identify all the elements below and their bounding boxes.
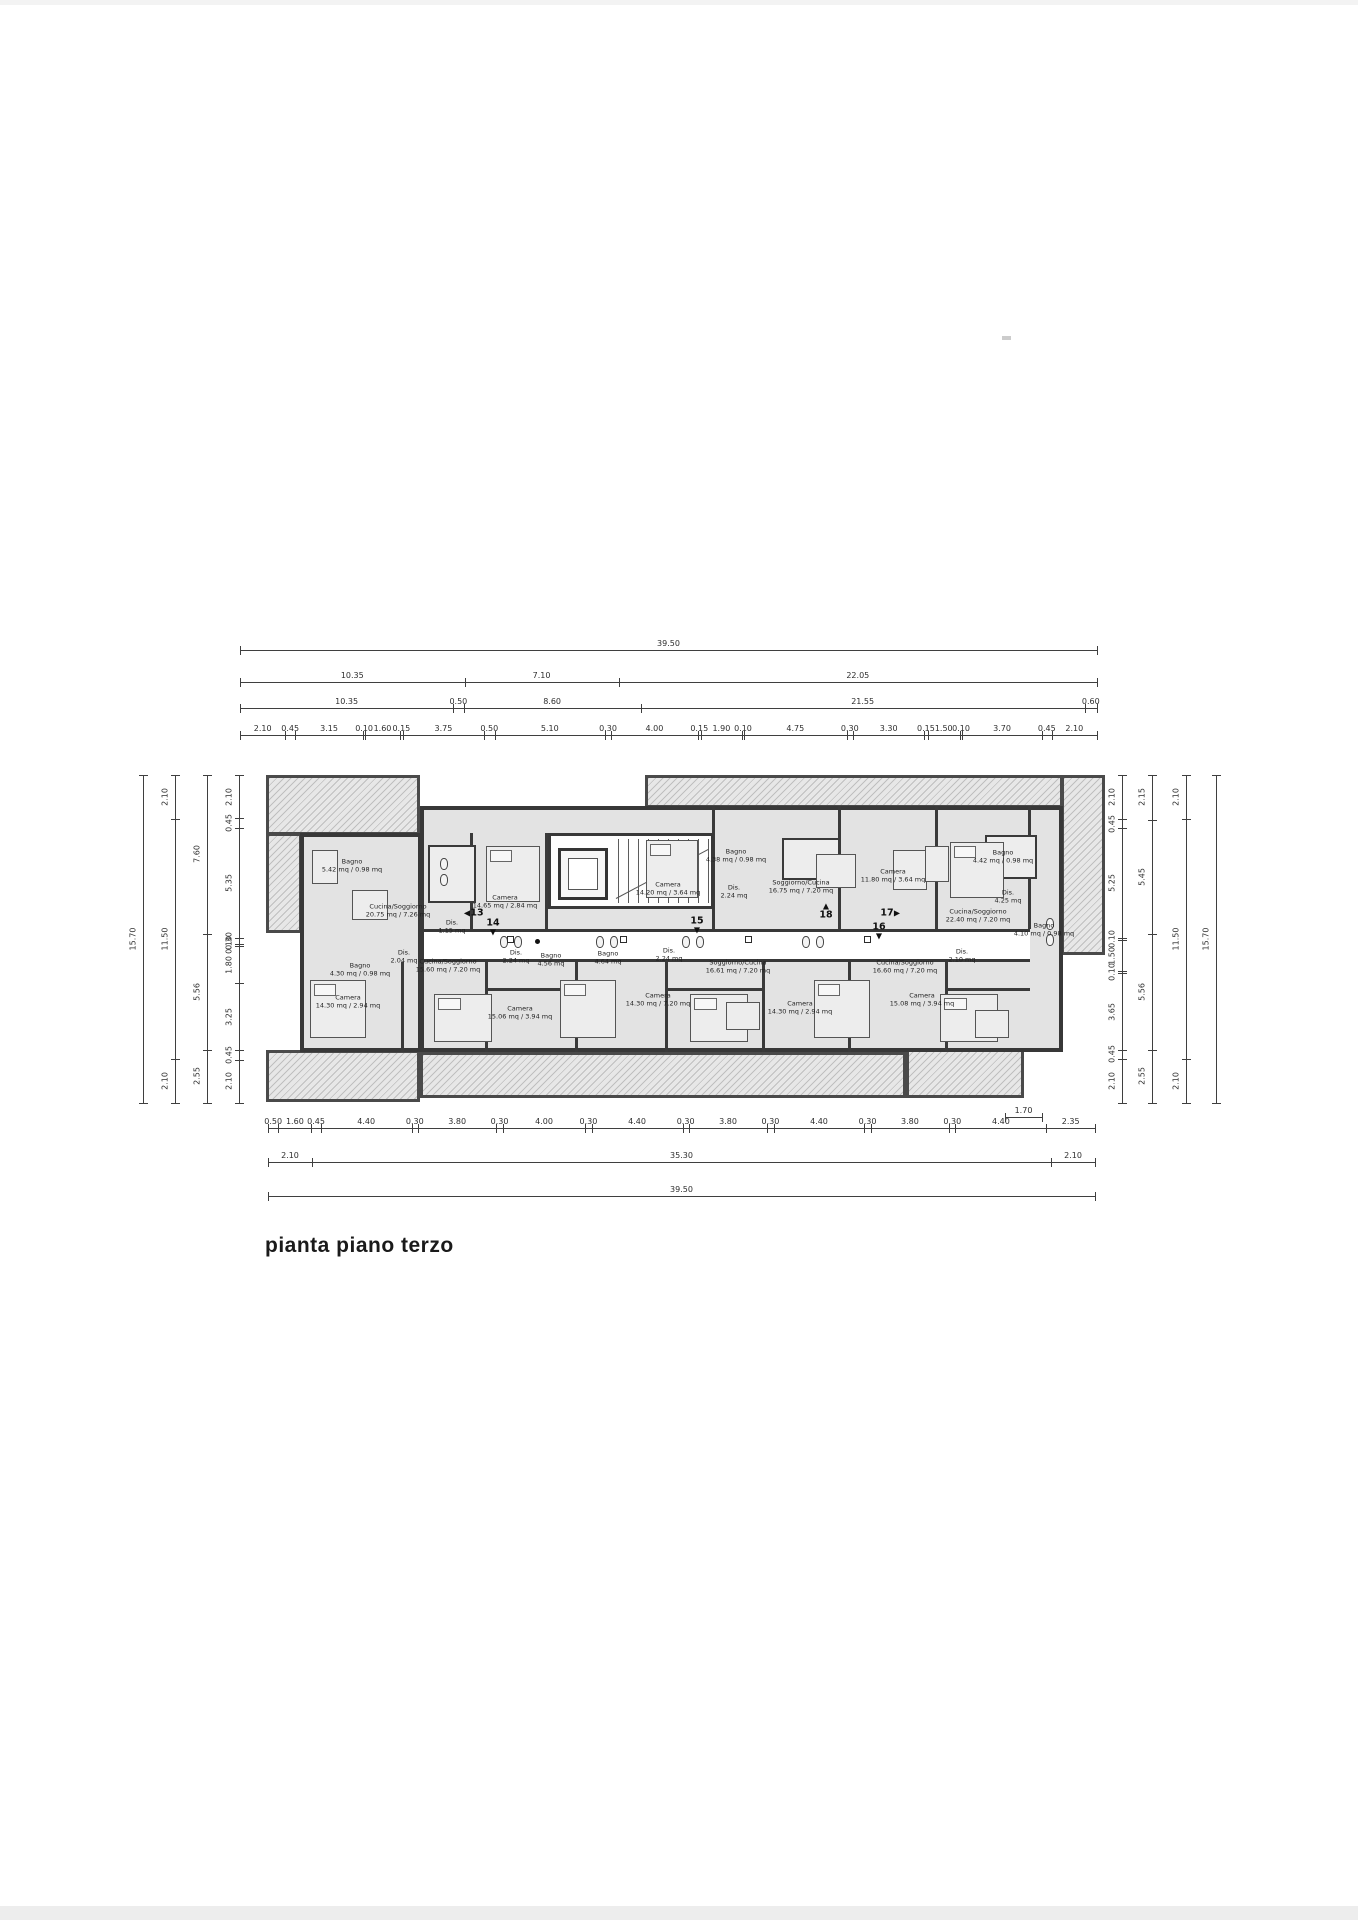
dim-right-col-1-value: 3.65 [1108,1003,1117,1021]
dim-top-row-4-value: 3.75 [435,724,453,733]
room-label-line: 14.30 mq / 2.94 mq [768,1008,832,1016]
dim-right-col-1-tick [1118,938,1127,939]
wc-fixture-symbol [696,936,704,948]
room-label: Bagno4.64 mq [595,950,622,967]
dim-bottom-row-1-value: 0.50 [264,1117,282,1126]
room-label-line: 4.30 mq / 0.98 mq [330,970,390,978]
scanned-floor-plan-page: { "page": { "title_block": "pianta piano… [0,0,1358,1920]
room-label-line: Bagno [595,950,622,958]
dim-bottom-row-1-value: 3.80 [448,1117,466,1126]
dim-bottom-inset [1005,1117,1042,1118]
dim-bottom-row-1-value: 0.30 [859,1117,877,1126]
dim-left-col-2-tick [171,1059,180,1060]
dim-right-col-1-tick [1118,1059,1127,1060]
room-label: Soggiorno/Cucina16.75 mq / 7.20 mq [769,879,833,896]
dim-left-col-2-value: 2.10 [161,788,170,806]
room-label: Dis.4.25 mq [995,889,1022,906]
dim-right-col-3-value: 11.50 [1172,928,1181,951]
room-label-line: Dis. [656,947,683,955]
dim-right-col-3-tick [1182,775,1191,776]
partition-wall [665,988,764,991]
dim-top-row-4-tick [495,731,496,740]
dim-bottom-row-1-tick [955,1124,956,1133]
dim-right-col-3-value: 2.10 [1172,1072,1181,1090]
room-label: Dis.2.10 mq [949,948,976,965]
wc-fixture-symbol [514,936,522,948]
dim-bottom-row-3-tick [1095,1192,1096,1201]
room-label: Bagno4.56 mq [538,952,565,969]
dim-left-col-4-tick [235,1060,244,1061]
dim-right-col-1-value: 5.25 [1108,874,1117,892]
dim-bottom-row-2-value: 35.30 [670,1151,693,1160]
bed-pillow-symbol [490,850,512,862]
dim-right-col-4-tick [1212,775,1221,776]
dim-right-col-3-tick [1182,1103,1191,1104]
dim-top-row-4-tick [1052,731,1053,740]
dim-bottom-row-2-tick [312,1158,313,1167]
dim-right-col-1-value: 0.45 [1108,1046,1117,1064]
dim-top-row-4-value: 0.15 [917,724,935,733]
dim-right-col-1-value: 2.10 [1108,788,1117,806]
room-label-line: Camera [861,868,925,876]
dim-left-col-2-tick [171,1103,180,1104]
bed-pillow-symbol [564,984,586,996]
dim-top-row-3-tick [464,704,465,713]
dim-left-col-4-value: 1.80 [225,956,234,974]
room-label-line: 16.75 mq / 7.20 mq [769,887,833,895]
room-label-line: Soggiorno/Cucina [769,879,833,887]
dim-right-col-1-value: 0.10 [1108,964,1117,982]
unit-entry-arrow-icon: ▼ [694,926,700,935]
dim-bottom-row-2-value: 2.10 [281,1151,299,1160]
dim-right-col-4 [1216,775,1217,1103]
dim-top-row-4-value: 0.15 [392,724,410,733]
dim-top-row-3-tick [240,704,241,713]
room-label: Dis.2.24 mq [503,949,530,966]
dim-top-row-3-value: 10.35 [335,697,358,706]
room-label: Camera15.08 mq / 3.94 mq [890,992,954,1009]
dim-right-col-1-value: 2.10 [1108,1072,1117,1090]
dim-top-row-4-tick [403,731,404,740]
dim-left-col-3 [207,775,208,1103]
dim-top-row-4-tick [744,731,745,740]
bed-pillow-symbol [818,984,840,996]
dim-bottom-row-1-value: 4.00 [535,1117,553,1126]
dim-top-row-2-tick [465,678,466,687]
dim-bottom-inset-value: 1.70 [1015,1106,1033,1115]
room-label-line: 4.25 mq [995,897,1022,905]
dim-bottom-row-1-tick [774,1124,775,1133]
room-label: Camera15.06 mq / 3.94 mq [488,1005,552,1022]
dim-bottom-row-1-value: 4.40 [992,1117,1010,1126]
dim-bottom-row-1-tick [278,1124,279,1133]
room-label-line: Dis. [391,949,418,957]
room-label-line: 4.10 mq / 0.98 mq [1014,930,1074,938]
dim-bottom-row-1-value: 0.30 [761,1117,779,1126]
dim-left-col-1 [143,775,144,1103]
dim-bottom-row-1-tick [1046,1124,1047,1133]
dim-top-row-3-value: 0.50 [449,697,467,706]
dim-bottom-row-3-value: 39.50 [670,1185,693,1194]
room-label-line: 4.56 mq [538,960,565,968]
room-label-line: Dis. [995,889,1022,897]
room-label: Camera14.30 mq / 2.94 mq [768,1000,832,1017]
dim-left-col-2-tick [171,775,180,776]
room-label: Dis.1.15 mq [439,919,466,936]
room-label: Camera11.80 mq / 3.64 mq [861,868,925,885]
dim-top-row-4-value: 1.50 [935,724,953,733]
room-label-line: Cucina/Soggiorno [366,903,430,911]
corridor-junction-box-symbol [620,936,627,943]
dim-top-row-4-value: 4.00 [646,724,664,733]
room-label-line: 14.30 mq / 2.94 mq [316,1002,380,1010]
dim-left-col-4-value: 5.35 [225,874,234,892]
room-label-line: Bagno [973,849,1033,857]
dim-top-row-4-value: 0.30 [599,724,617,733]
sofa-symbol [925,846,949,882]
room-label-line: 14.20 mq / 3.64 mq [636,889,700,897]
dim-bottom-row-1-tick [321,1124,322,1133]
room-label: Cucina/Soggiorno15.60 mq / 7.20 mq [416,958,480,975]
room-label-line: Cucina/Soggiorno [873,959,937,967]
dim-top-row-4-tick [611,731,612,740]
dim-bottom-row-1-tick [503,1124,504,1133]
dim-top-row-4-tick [928,731,929,740]
dim-left-col-4-value: 2.10 [225,1072,234,1090]
dim-bottom-row-2-tick [1051,1158,1052,1167]
room-label-line: Bagno [322,858,382,866]
room-label-line: Soggiorno/Cucina [706,959,770,967]
room-label-line: Dis. [439,919,466,927]
unit-entry-arrow-icon: ▼ [490,928,496,937]
bed-pillow-symbol [694,998,717,1010]
dim-right-col-3-tick [1182,1059,1191,1060]
dim-top-row-4-value: 2.10 [1065,724,1083,733]
room-label-line: 4.42 mq / 0.98 mq [973,857,1033,865]
dim-bottom-row-1-value: 3.80 [719,1117,737,1126]
dim-right-col-4-value: 15.70 [1202,928,1211,951]
corridor-door-dot-symbol [535,939,540,944]
dim-left-col-4 [239,775,240,1103]
room-label-line: 22.40 mq / 7.20 mq [946,916,1010,924]
unit-number-17: 17 [880,908,893,919]
dim-left-col-4-value: 3.25 [225,1008,234,1026]
dim-top-row-4-value: 0.45 [281,724,299,733]
dim-top-row-4-tick [853,731,854,740]
dim-right-col-1-value: 1.50 [1108,947,1117,965]
room-label-line: 4.38 mq / 0.98 mq [706,856,766,864]
dim-left-col-3-tick [203,934,212,935]
room-label-line: Camera [626,992,690,1000]
dim-top-row-2-value: 22.05 [846,671,869,680]
room-label: Bagno4.38 mq / 0.98 mq [706,848,766,865]
room-label-line: Bagno [538,952,565,960]
dim-left-col-3-tick [203,775,212,776]
terrace-bottom-middle [420,1052,906,1098]
dim-top-row-1-tick [1097,646,1098,655]
room-label-line: 2.24 mq [721,892,748,900]
dim-top-row-4-value: 0.30 [841,724,859,733]
dim-bottom-row-1 [268,1128,1095,1129]
dim-right-col-1-tick [1118,940,1127,941]
unit-entry-arrow-icon: ▼ [876,932,882,941]
unit-number-18: 18 [819,910,832,921]
room-label-line: Camera [768,1000,832,1008]
room-label: Dis.2.04 mq [391,949,418,966]
room-label: Camera14.30 mq / 2.94 mq [316,994,380,1011]
room-label: Cucina/Soggiorno22.40 mq / 7.20 mq [946,908,1010,925]
room-label-line: 16.61 mq / 7.20 mq [706,967,770,975]
terrace-top-left-side [266,833,302,933]
dim-bottom-row-1-value: 4.40 [628,1117,646,1126]
unit-entry-arrow-icon: ◀ [464,909,470,918]
room-label-line: Camera [473,894,537,902]
dim-top-row-4-value: 1.60 [374,724,392,733]
terrace-top-left [266,775,420,835]
dim-top-row-2-value: 7.10 [533,671,551,680]
room-label-line: Cucina/Soggiorno [946,908,1010,916]
room-label: Dis.2.24 mq [721,884,748,901]
dim-top-row-3-value: 21.55 [851,697,874,706]
dim-bottom-row-1-value: 4.40 [357,1117,375,1126]
partition-wall [401,962,404,1052]
dim-right-col-1-value: 0.10 [1108,930,1117,948]
dim-left-col-2-tick [171,819,180,820]
dim-left-col-3-value: 2.55 [193,1067,202,1085]
dim-bottom-row-1-value: 0.30 [677,1117,695,1126]
room-label-line: 5.42 mq / 0.98 mq [322,866,382,874]
dim-bottom-row-3-tick [268,1192,269,1201]
dim-right-col-2-value: 2.15 [1138,789,1147,807]
dim-left-col-4-value: 0.45 [225,814,234,832]
dim-top-row-4-tick [295,731,296,740]
wc-fixture-symbol [440,858,448,870]
room-label: Bagno4.10 mq / 0.98 mq [1014,922,1074,939]
wc-fixture-symbol [802,936,810,948]
dim-bottom-inset-tick [1005,1113,1006,1122]
elevator-cab [568,858,598,890]
dim-top-row-4-value: 0.10 [355,724,373,733]
dim-top-row-4-value: 0.45 [1038,724,1056,733]
dim-right-col-1-value: 0.45 [1108,815,1117,833]
dim-bottom-row-1-value: 0.30 [491,1117,509,1126]
dim-right-col-4-tick [1212,1103,1221,1104]
unit-number-13: 13 [470,908,483,919]
dim-right-col-2-tick [1148,820,1157,821]
room-label-line: Camera [636,881,700,889]
dim-right-col-2-tick [1148,1103,1157,1104]
dim-top-row-1-tick [240,646,241,655]
room-label-line: 4.64 mq [595,958,622,966]
dim-bottom-row-2-value: 2.10 [1064,1151,1082,1160]
room-label-line: 15.60 mq / 7.20 mq [416,966,480,974]
dim-left-col-4-tick [235,983,244,984]
corridor-junction-box-symbol [745,936,752,943]
dim-left-col-2-value: 2.10 [161,1072,170,1090]
dim-top-row-3-value: 8.60 [543,697,561,706]
dim-right-col-3-tick [1182,819,1191,820]
dim-bottom-row-1-tick [1095,1124,1096,1133]
dim-left-col-2-value: 11.50 [161,928,170,951]
dim-top-row-4-tick [240,731,241,740]
dim-bottom-row-2-tick [1095,1158,1096,1167]
dim-left-col-4-value: 0.45 [225,1046,234,1064]
dim-right-col-2-tick [1148,934,1157,935]
terrace-bottom-left [266,1050,420,1102]
dim-right-col-2-value: 5.56 [1138,983,1147,1001]
room-label: Cucina/Soggiorno20.75 mq / 7.26 mq [366,903,430,920]
dim-top-row-4-value: 2.10 [254,724,272,733]
dim-left-col-1-tick [139,1103,148,1104]
dim-left-col-4-tick [235,775,244,776]
room-label-line: Dis. [503,949,530,957]
dim-bottom-row-2-tick [268,1158,269,1167]
room-label-line: 14.30 mq / 7.20 mq [626,1000,690,1008]
wc-fixture-symbol [682,936,690,948]
dim-left-col-1-tick [139,775,148,776]
room-label: Camera14.20 mq / 3.64 mq [636,881,700,898]
corridor-junction-box-symbol [507,936,514,943]
dim-top-row-4-value: 0.10 [734,724,752,733]
wc-fixture-symbol [816,936,824,948]
dim-bottom-row-1-tick [418,1124,419,1133]
wc-fixture-symbol [440,874,448,886]
dim-top-row-2-tick [1097,678,1098,687]
dim-bottom-row-1-value: 3.80 [901,1117,919,1126]
corridor-junction-box-symbol [864,936,871,943]
dim-top-row-4-value: 3.30 [880,724,898,733]
dim-left-col-1-value: 15.70 [129,928,138,951]
dim-right-col-2 [1152,775,1153,1103]
dim-left-col-2 [175,775,176,1103]
unit-entry-arrow-icon: ▶ [894,909,900,918]
dim-top-row-4-value: 1.90 [712,724,730,733]
dim-left-col-3-tick [203,1050,212,1051]
table-symbol [975,1010,1009,1038]
dim-top-row-2-value: 10.35 [341,671,364,680]
dim-top-row-4-tick [365,731,366,740]
room-label-line: Cucina/Soggiorno [416,958,480,966]
dim-bottom-row-2 [268,1162,1095,1163]
dim-right-col-1-tick [1118,971,1127,972]
dim-left-col-4-tick [235,944,244,945]
dim-bottom-row-1-value: 4.40 [810,1117,828,1126]
room-label-line: 2.24 mq [656,955,683,963]
dim-left-col-4-tick [235,818,244,819]
partition-wall [762,962,765,1052]
dim-bottom-row-1-tick [592,1124,593,1133]
room-label: Camera14.30 mq / 7.20 mq [626,992,690,1009]
dim-right-col-1-tick [1118,819,1127,820]
dim-left-col-4-value: 2.10 [225,788,234,806]
dim-left-col-3-value: 7.60 [193,845,202,863]
floor-plan-drawing: Cucina/Soggiorno20.75 mq / 7.26 mqBagno5… [0,0,1358,1920]
room-label: Cucina/Soggiorno16.60 mq / 7.20 mq [873,959,937,976]
room-label: Bagno4.30 mq / 0.98 mq [330,962,390,979]
room-label-line: 2.24 mq [503,957,530,965]
dim-right-col-1-tick [1118,1103,1127,1104]
table-symbol [726,1002,760,1030]
dim-right-col-3-value: 2.10 [1172,788,1181,806]
dim-left-col-3-tick [203,1103,212,1104]
partition-wall [945,988,1030,991]
room-label-line: 2.10 mq [949,956,976,964]
bathroom [428,845,476,903]
room-label-line: Dis. [949,948,976,956]
wc-fixture-symbol [596,936,604,948]
dim-right-col-1-tick [1118,828,1127,829]
dim-top-row-4-tick [701,731,702,740]
dim-bottom-row-1-value: 0.30 [406,1117,424,1126]
dim-right-col-2-value: 2.55 [1138,1067,1147,1085]
room-label-line: Camera [316,994,380,1002]
room-label-line: 11.80 mq / 3.64 mq [861,876,925,884]
dim-top-row-4 [240,735,1097,736]
room-label-line: 1.15 mq [439,927,466,935]
dim-top-row-4-value: 0.15 [690,724,708,733]
dim-left-col-4-tick [235,938,244,939]
dim-top-row-2 [240,682,1097,683]
room-label: Soggiorno/Cucina16.61 mq / 7.20 mq [706,959,770,976]
dim-top-row-1-value: 39.50 [657,639,680,648]
bed-pillow-symbol [650,844,671,856]
dim-right-col-3 [1186,775,1187,1103]
dim-top-row-4-value: 4.75 [786,724,804,733]
dim-bottom-inset-tick [1042,1113,1043,1122]
room-label: Bagno4.42 mq / 0.98 mq [973,849,1033,866]
dim-right-col-1 [1122,775,1123,1103]
dim-bottom-row-1-value: 1.60 [286,1117,304,1126]
dim-bottom-row-1-tick [689,1124,690,1133]
dim-right-col-2-tick [1148,1050,1157,1051]
unit-entry-arrow-icon: ▲ [823,902,829,911]
dim-top-row-1 [240,650,1097,651]
dim-top-row-4-value: 3.70 [993,724,1011,733]
dim-bottom-row-1-value: 0.45 [307,1117,325,1126]
room-label-line: 15.08 mq / 3.94 mq [890,1000,954,1008]
drawing-title: pianta piano terzo [265,1234,454,1258]
room-label-line: 2.04 mq [391,957,418,965]
room-label-line: Camera [488,1005,552,1013]
room-label-line: 15.06 mq / 3.94 mq [488,1013,552,1021]
wc-fixture-symbol [610,936,618,948]
terrace-top-right [645,775,1063,808]
dim-top-row-3 [240,708,1097,709]
room-label-line: 16.60 mq / 7.20 mq [873,967,937,975]
room-label-line: 20.75 mq / 7.26 mq [366,911,430,919]
dim-right-col-2-value: 5.45 [1138,868,1147,886]
dim-bottom-row-1-tick [871,1124,872,1133]
dim-left-col-4-tick [235,946,244,947]
dim-top-row-4-tick [1097,731,1098,740]
drawing-sheet: Cucina/Soggiorno20.75 mq / 7.26 mqBagno5… [0,0,1358,1920]
dim-top-row-3-tick [1097,704,1098,713]
dim-left-col-4-value: 0.10 [225,936,234,954]
dim-bottom-row-1-value: 2.35 [1062,1117,1080,1126]
dim-left-col-3-value: 5.56 [193,983,202,1001]
room-label-line: Dis. [721,884,748,892]
dim-left-col-4-tick [235,1103,244,1104]
dim-top-row-3-tick [641,704,642,713]
room-label-line: Bagno [706,848,766,856]
dim-top-row-4-value: 0.10 [952,724,970,733]
dim-top-row-4-value: 3.15 [320,724,338,733]
dim-top-row-2-tick [240,678,241,687]
dim-bottom-row-1-value: 0.30 [580,1117,598,1126]
dim-top-row-4-value: 5.10 [541,724,559,733]
room-label-line: Bagno [1014,922,1074,930]
dim-bottom-row-3 [268,1196,1095,1197]
